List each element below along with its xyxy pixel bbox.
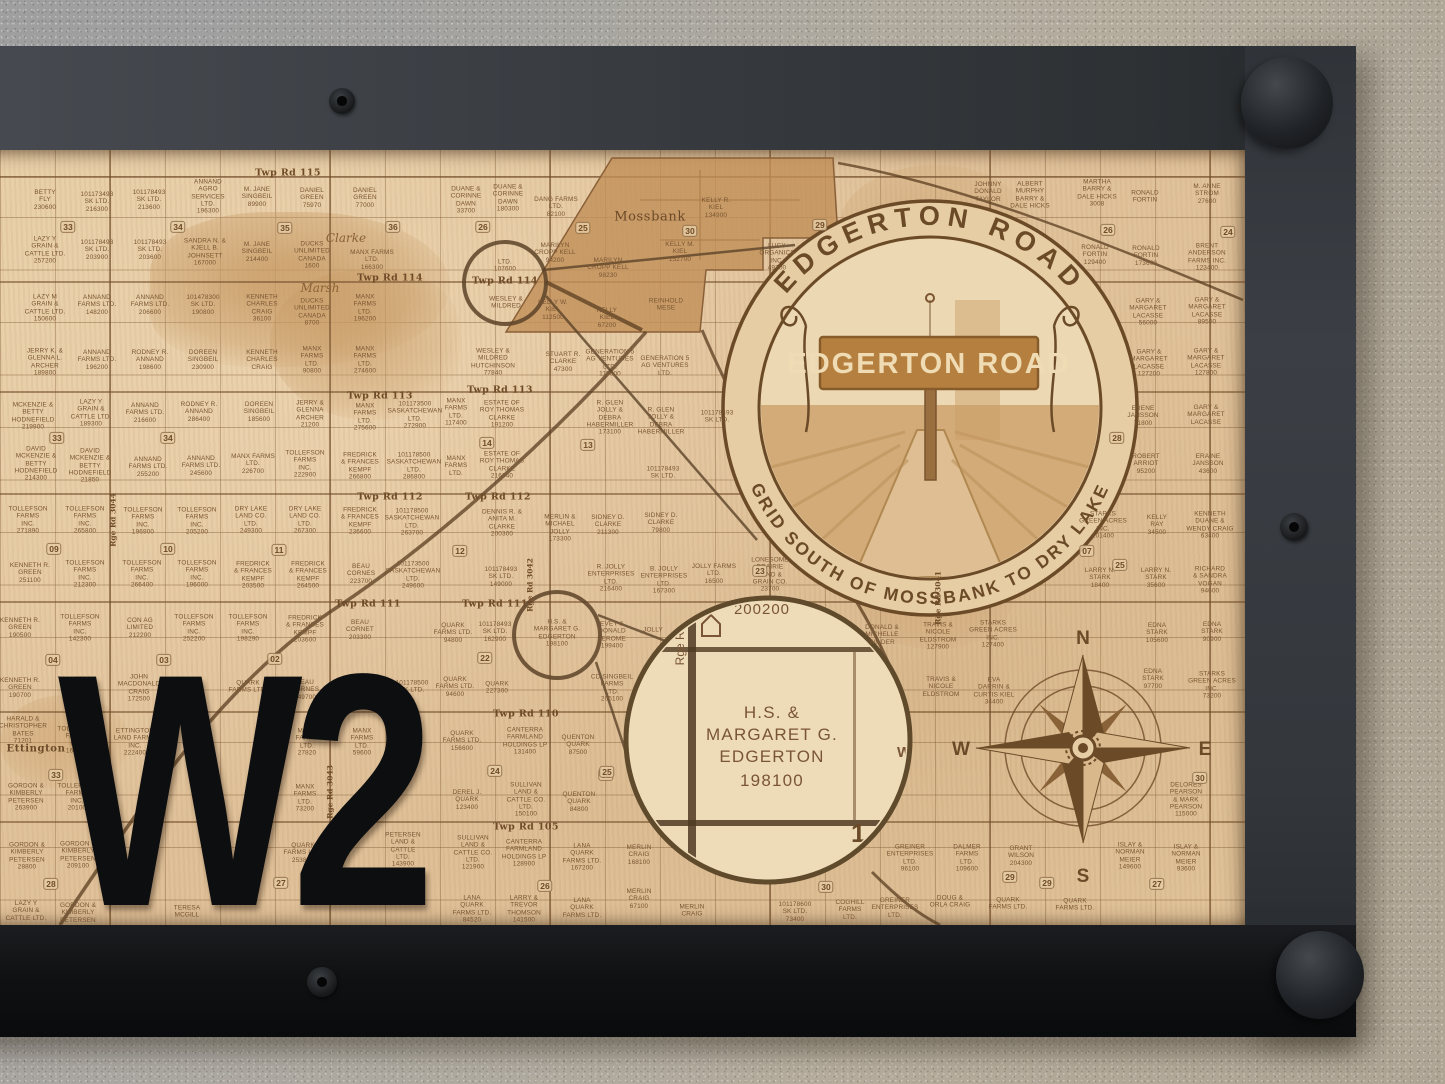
compass-w-label: W bbox=[952, 739, 970, 760]
frame-peg-top-right bbox=[1241, 57, 1333, 149]
compass-e-label: E bbox=[1199, 739, 1212, 760]
frame-top-bar bbox=[0, 46, 1356, 150]
svg-text:H.S. &: H.S. & bbox=[744, 703, 800, 722]
emblem-sign-plate-text: EDGERTON ROAD bbox=[787, 348, 1070, 380]
frame-screw-top bbox=[329, 88, 355, 114]
svg-text:198100: 198100 bbox=[740, 771, 804, 790]
frame-bottom-bar bbox=[0, 925, 1356, 1037]
frame-right-bar bbox=[1245, 46, 1356, 1037]
compass-n-label: N bbox=[1076, 628, 1090, 649]
compass-s-label: S bbox=[1077, 866, 1090, 887]
svg-text:MARGARET G.: MARGARET G. bbox=[706, 725, 838, 744]
edgerton-emblem: EDGERTON ROAD EDGERTON ROAD GRID SOUTH O… bbox=[723, 201, 1137, 615]
frame-peg-bottom-right bbox=[1276, 931, 1364, 1019]
frame-screw-right bbox=[1280, 513, 1308, 541]
big-letters-w2: W2 bbox=[58, 645, 425, 937]
photo-of-framed-map: EDGERTON ROAD EDGERTON ROAD GRID SOUTH O… bbox=[0, 0, 1445, 1084]
svg-text:EDGERTON: EDGERTON bbox=[719, 747, 824, 766]
frame-screw-bottom bbox=[307, 967, 337, 997]
